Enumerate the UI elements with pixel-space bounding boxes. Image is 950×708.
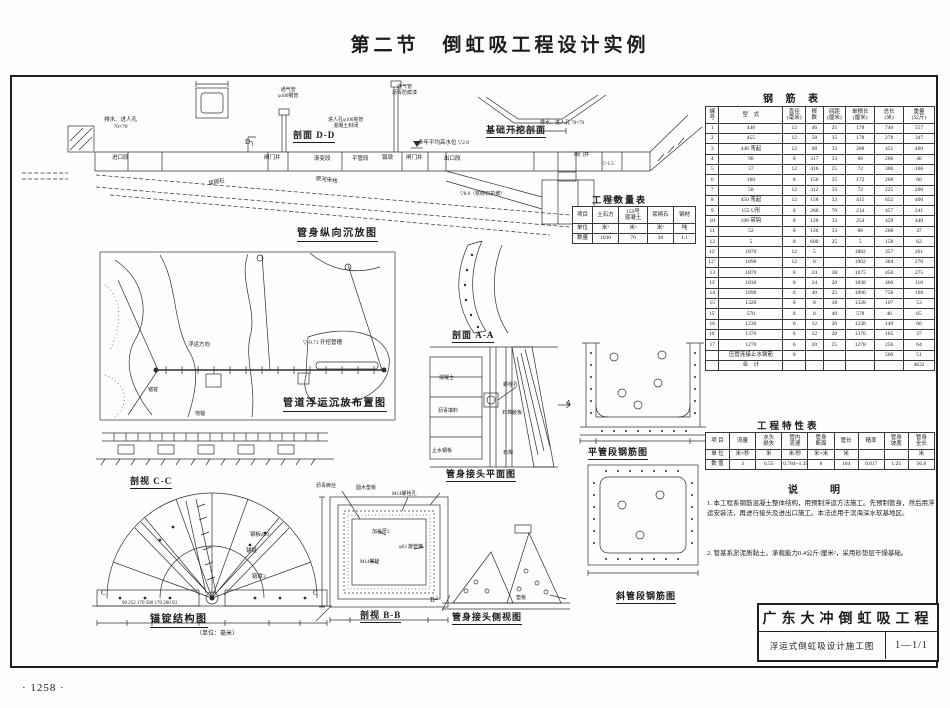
- table-row: 758123123372225200: [706, 185, 935, 195]
- table-cell: 8: [783, 216, 806, 226]
- table-cell: [806, 360, 824, 370]
- table-cell: 33: [823, 216, 846, 226]
- table-cell: 225: [875, 185, 904, 195]
- table-cell: 钢材: [674, 207, 696, 224]
- table-row: 131870824381875450275: [706, 268, 935, 278]
- table-cell: 20: [823, 319, 846, 329]
- table-row: 17127062025127825664: [706, 340, 935, 350]
- table-row: 数量103070301.1: [573, 233, 696, 243]
- table-row: 单 位米³/秒米米/秒米×米米米: [706, 449, 935, 459]
- table-cell: 33: [823, 226, 846, 236]
- section-dd-title: 剖面 D-D: [293, 130, 335, 143]
- table-cell: 1320: [719, 298, 783, 308]
- table-cell: 12: [806, 319, 824, 329]
- table-cell: 46: [904, 154, 935, 164]
- joint-front-drawing: [459, 241, 508, 333]
- table-cell: 8: [783, 298, 806, 308]
- table-cell: 448 弯起: [719, 144, 783, 154]
- table-cell: 33: [823, 195, 846, 205]
- table-cell: 12: [783, 123, 806, 133]
- table-cell: 浆砌石: [648, 207, 674, 224]
- table-cell: 38: [823, 268, 846, 278]
- table-cell: 1890: [719, 257, 783, 267]
- table-cell: 12: [783, 257, 806, 267]
- table-cell: 46: [875, 309, 904, 319]
- vent-pipe1-label: 通气管 φ100钢管: [278, 88, 298, 100]
- wood-pad-label: 圆木垫板: [356, 486, 376, 492]
- table-cell: 52: [719, 226, 783, 236]
- table-cell: 62: [904, 237, 935, 247]
- table-cell: [783, 360, 806, 370]
- table-cell: 数量: [573, 233, 593, 243]
- table-cell: 178: [846, 123, 875, 133]
- table-cell: 88: [846, 226, 875, 236]
- table-cell: 460: [875, 278, 904, 288]
- table-cell: 单 位: [706, 449, 730, 459]
- transition-label: 渐变段: [314, 156, 331, 163]
- table-cell: 57: [719, 164, 783, 174]
- table-cell: 198 带钩: [719, 216, 783, 226]
- table-cell: 米³: [648, 223, 674, 233]
- table-cell: 米: [756, 449, 782, 459]
- table-cell: 单根长 (厘米): [846, 107, 875, 124]
- table-cell: 8: [806, 309, 824, 319]
- drain-manhole-right-label: 排水、进人孔 70×70: [540, 121, 584, 127]
- table-cell: 24: [806, 278, 824, 288]
- table-cell: 1270: [719, 340, 783, 350]
- section-bb-drawing: [316, 491, 448, 623]
- book-page: { "colors": {"ink": "#1c1c1c", "paper": …: [0, 0, 950, 708]
- table-cell: 3: [729, 459, 755, 469]
- table-cell: 16: [706, 319, 719, 329]
- flat-rebar-title: 平管段钢筋图: [588, 447, 648, 460]
- table-cell: 根 数: [806, 107, 824, 124]
- table-cell: 12: [783, 164, 806, 174]
- table-cell: 1838: [846, 278, 875, 288]
- notes-title: 说 明: [788, 481, 844, 496]
- table-cell: 126: [806, 226, 824, 236]
- map-anchor-label: 锚锭: [148, 388, 158, 394]
- table-cell: 14: [706, 288, 719, 298]
- table-cell: 415: [846, 195, 875, 205]
- table-cell: 米: [908, 449, 934, 459]
- table-cell: 25: [823, 237, 846, 247]
- water-stop-label: 止水钢板: [432, 449, 452, 455]
- characteristics-table: 项 目流量水头 损失管内 流速管身 断面管长糙率管身 坡度管身 全长单 位米³/…: [705, 432, 935, 470]
- table-cell: 水头 损失: [756, 433, 782, 450]
- table-cell: 1902: [846, 257, 875, 267]
- table-cell: 1875: [846, 268, 875, 278]
- table-row: 2455125835178278347: [706, 133, 935, 143]
- table-cell: [823, 360, 846, 370]
- gate-well2-label: 闸门井: [406, 155, 423, 162]
- slope-note-label: ▽8.6（浆砌石护坡）: [460, 192, 505, 198]
- table-cell: 570: [719, 309, 783, 319]
- table-cell: 1:25: [884, 459, 908, 469]
- pipe-hoop-label: φ63 旋管箍: [399, 545, 423, 551]
- table-cell: 1890: [719, 288, 783, 298]
- cover-thickness-label: 加盖厚3: [372, 530, 390, 536]
- table-cell: 155 U形: [719, 206, 783, 216]
- table-cell: 128: [806, 216, 824, 226]
- table-cell: 20: [823, 278, 846, 288]
- table-row: 11528126338826847: [706, 226, 935, 236]
- table-cell: 200: [904, 185, 935, 195]
- table-cell: 25: [823, 123, 846, 133]
- table-cell: 20: [823, 329, 846, 339]
- table-cell: 12: [783, 144, 806, 154]
- table-row: 616881562517226860: [706, 175, 935, 185]
- joint-side-title: 管身接头侧视图: [452, 612, 522, 625]
- table-cell: 米³/秒: [729, 449, 755, 459]
- table-cell: 4: [706, 154, 719, 164]
- table-cell: [846, 360, 875, 370]
- table-cell: 448: [719, 123, 783, 133]
- table-cell: 8: [783, 175, 806, 185]
- table-cell: 编 号: [706, 107, 719, 124]
- table-cell: 糙率: [858, 433, 884, 450]
- table-cell: 37: [904, 329, 935, 339]
- table-cell: 8: [783, 309, 806, 319]
- table-cell: 98: [719, 154, 783, 164]
- manhole-mid-label: 进人孔φ100夹管 混凝土封闭: [328, 118, 363, 130]
- table-cell: 400: [904, 144, 935, 154]
- table-cell: [823, 350, 846, 360]
- table-cell: 12″: [706, 257, 719, 267]
- quantity-table-title: 工程数量表: [592, 193, 647, 206]
- table-cell: 管长: [834, 433, 858, 450]
- section-bb-title: 剖视 B-B: [360, 610, 401, 623]
- table-cell: 16′: [706, 329, 719, 339]
- table-cell: 107: [875, 298, 904, 308]
- map-direction-label: 浮运方向: [188, 342, 210, 349]
- table-cell: [875, 360, 904, 370]
- table-cell: 206: [875, 154, 904, 164]
- pad-plate-label: 垫板: [516, 596, 526, 602]
- table-cell: 8: [808, 459, 834, 469]
- table-cell: 652: [875, 195, 904, 205]
- table-cell: 172: [846, 175, 875, 185]
- table-cell: 1328: [846, 298, 875, 308]
- excavation-section-title: 基础开挖剖面: [486, 125, 546, 138]
- table-cell: [846, 350, 875, 360]
- table-cell: 13: [706, 268, 719, 278]
- table-row: 编 号型 式直径 (毫米)根 数间距 (厘米)单根长 (厘米)总长 (米)重量 …: [706, 107, 935, 124]
- table-cell: 1882: [846, 247, 875, 257]
- asphalt-fiber-label: 沥青麻丝: [316, 484, 336, 490]
- table-cell: 33: [823, 154, 846, 164]
- table-cell: 104: [834, 459, 858, 469]
- table-cell: 1870: [719, 247, 783, 257]
- table-cell: 66: [904, 319, 935, 329]
- table-cell: 70: [823, 206, 846, 216]
- table-row: 合 计4632: [706, 360, 935, 370]
- table-row: 9155 U形826070214457241: [706, 206, 935, 216]
- table-cell: 8: [806, 298, 824, 308]
- table-cell: 70: [619, 233, 648, 243]
- project-name: 广东大冲倒虹吸工程: [759, 605, 937, 632]
- table-cell: [858, 449, 884, 459]
- table-cell: 150号 混凝土: [619, 207, 648, 224]
- table-cell: 214: [846, 206, 875, 216]
- table-cell: 278: [875, 133, 904, 143]
- table-cell: 管身 全长: [908, 433, 934, 450]
- table-cell: 30: [648, 233, 674, 243]
- b-cut-mark: B┘: [430, 596, 440, 604]
- table-cell: 8: [783, 154, 806, 164]
- rebar-table: 编 号型 式直径 (毫米)根 数间距 (厘米)单根长 (厘米)总长 (米)重量 …: [705, 106, 935, 371]
- table-cell: 118: [904, 278, 935, 288]
- table-cell: 261: [904, 247, 935, 257]
- inlet-label: 进口段: [112, 155, 129, 162]
- table-cell: 758: [875, 288, 904, 298]
- table-cell: 455: [719, 133, 783, 143]
- table-cell: 256: [875, 340, 904, 350]
- table-cell: 33: [823, 185, 846, 195]
- table-cell: 25: [823, 175, 846, 185]
- table-cell: 459: [875, 216, 904, 226]
- table-cell: 0.784~1.35: [782, 459, 808, 469]
- table-cell: 0.017: [858, 459, 884, 469]
- table-cell: 260: [806, 206, 824, 216]
- table-cell: 268: [875, 226, 904, 236]
- table-cell: 1278: [846, 340, 875, 350]
- table-cell: 578: [846, 309, 875, 319]
- page-number: · 1258 ·: [22, 682, 65, 694]
- table-cell: 149: [875, 319, 904, 329]
- asphalt-seal-label: 沥青填料: [438, 409, 458, 415]
- table-cell: 15′: [706, 309, 719, 319]
- table-cell: 单位: [573, 223, 593, 233]
- table-cell: 流量: [729, 433, 755, 450]
- table-cell: 5: [706, 164, 719, 174]
- table-cell: 管内 流速: [782, 433, 808, 450]
- joint-plan-title: 管身接头平面图: [446, 469, 516, 482]
- table-cell: 1: [706, 123, 719, 133]
- table-cell: 管身 坡度: [884, 433, 908, 450]
- table-cell: 13′: [706, 278, 719, 288]
- table-cell: 2: [706, 133, 719, 143]
- table-cell: 68: [806, 144, 824, 154]
- table-cell: 64: [904, 340, 935, 350]
- table-cell: 1830: [719, 278, 783, 288]
- vent-pipe2-label: 通气管 沥青防腐漆: [392, 85, 417, 97]
- table-cell: 178: [846, 133, 875, 143]
- table-cell: 6: [806, 257, 824, 267]
- table-row: 557124162572300166: [706, 164, 935, 174]
- float-strip-drawing: [96, 433, 334, 465]
- table-cell: 46: [806, 123, 824, 133]
- anchor-unit-note: （单位：毫米）: [196, 631, 238, 638]
- table-cell: 304: [875, 257, 904, 267]
- table-cell: 土石方: [593, 207, 619, 224]
- table-cell: 8: [783, 350, 806, 360]
- table-cell: [823, 257, 846, 267]
- table-row: 单位米³米³米³吨: [573, 223, 696, 233]
- table-cell: 18: [823, 298, 846, 308]
- table-cell: 7: [706, 185, 719, 195]
- table-cell: 357: [875, 247, 904, 257]
- note-item-2: 2. 管基系淤泥质黏土，承载能力0.4公斤/厘米²，采用砂垫层干燥基础。: [707, 549, 935, 559]
- table-cell: 440: [904, 216, 935, 226]
- table-cell: 6: [783, 288, 806, 298]
- table-cell: 58: [719, 185, 783, 195]
- map-winch-label: 地锚: [195, 412, 205, 418]
- table-cell: [706, 350, 719, 360]
- drawing-name: 浮运式倒虹吸设计施工图: [759, 632, 886, 659]
- table-row: 数 值30.550.784~1.3581040.0171:2556.8: [706, 459, 935, 469]
- table-cell: 40: [823, 309, 846, 319]
- bolt-hole-bb-label: M14螺栓孔: [392, 492, 416, 498]
- table-cell: 12: [783, 195, 806, 205]
- table-cell: 项目: [573, 207, 593, 224]
- a-cut-mark: A: [566, 399, 571, 407]
- table-cell: 268: [875, 175, 904, 185]
- table-cell: 数 值: [706, 459, 730, 469]
- table-cell: 5: [846, 237, 875, 247]
- anchor-block-label: 镇墩: [382, 155, 393, 162]
- table-row: 项目土石方150号 混凝土浆砌石钢材: [573, 207, 696, 224]
- table-cell: 1870: [719, 268, 783, 278]
- table-row: 10198 带钩812833254459440: [706, 216, 935, 226]
- table-cell: [884, 449, 908, 459]
- incline-rebar-drawing: [588, 465, 698, 576]
- table-cell: 158: [806, 195, 824, 205]
- table-cell: 8: [783, 268, 806, 278]
- table-cell: 53: [904, 298, 935, 308]
- table-cell: 8: [783, 206, 806, 216]
- table-cell: 8: [706, 195, 719, 205]
- table-cell: 416: [806, 164, 824, 174]
- table-cell: 压管连接止水钢筋: [719, 350, 783, 360]
- table-row: 4988317336620646: [706, 154, 935, 164]
- map-channel-label: ▽-0.71 开挖管槽: [303, 340, 342, 347]
- table-cell: 米³: [619, 223, 648, 233]
- outlet-level-label: ▽-1.5: [602, 162, 614, 168]
- pipe-body-label: 平管段: [352, 156, 369, 163]
- table-cell: 457: [875, 206, 904, 216]
- page-title: 第二节 倒虹吸工程设计实例: [270, 30, 730, 57]
- table-cell: 35: [823, 133, 846, 143]
- table-row: 13′1830824201838460118: [706, 278, 935, 288]
- table-cell: 9: [706, 206, 719, 216]
- table-cell: 11: [706, 226, 719, 236]
- table-cell: 72: [846, 164, 875, 174]
- bolt-hole-label: 螺栓孔: [503, 383, 518, 389]
- table-cell: 总长 (米): [875, 107, 904, 124]
- cc-right-mark: C: [313, 589, 318, 597]
- water-level-label: 多年平均高水位 ▽2.8: [418, 140, 469, 147]
- table-cell: 1.1: [674, 233, 696, 243]
- table-cell: 158: [875, 237, 904, 247]
- table-cell: 米³: [593, 223, 619, 233]
- table-cell: 3: [706, 144, 719, 154]
- anchor-structure-title: 锚锭结构图: [150, 614, 208, 628]
- table-cell: 72: [846, 185, 875, 195]
- table-cell: 4632: [904, 360, 935, 370]
- table-cell: 317: [806, 154, 824, 164]
- table-cell: 58: [806, 133, 824, 143]
- table-cell: 400: [904, 195, 935, 205]
- table-cell: 40: [806, 288, 824, 298]
- characteristics-table-title: 工程特性表: [757, 418, 820, 432]
- table-cell: 6: [783, 329, 806, 339]
- table-cell: 450: [875, 268, 904, 278]
- table-cell: 740: [875, 123, 904, 133]
- bolt-m14-label: M14螺栓: [360, 560, 379, 566]
- cc-dimensions: 90 252 170 580 170 200 93: [122, 601, 177, 607]
- table-cell: 8: [783, 226, 806, 236]
- table-cell: 项 目: [706, 433, 730, 450]
- table-cell: 500: [875, 350, 904, 360]
- rebar-table-title: 钢 筋 表: [763, 90, 823, 105]
- table-cell: 直径 (毫米): [783, 107, 806, 124]
- table-cell: 24: [806, 268, 824, 278]
- table-cell: 241: [904, 206, 935, 216]
- table-cell: 吨: [674, 223, 696, 233]
- table-row: 8450 弯起1215833415652400: [706, 195, 935, 205]
- table-cell: 米×米: [808, 449, 834, 459]
- map-title: 管道浮运沉放布置图: [283, 398, 387, 412]
- table-cell: 12: [706, 237, 719, 247]
- flat-rebar-drawing: [580, 343, 706, 444]
- table-cell: 450 弯起: [719, 195, 783, 205]
- title-block: 广东大冲倒虹吸工程 浮运式倒虹吸设计施工图 1—1/1: [757, 603, 939, 662]
- section-aa-title: 剖面 A-A: [452, 330, 494, 343]
- asbestos-label: 石棉: [503, 451, 513, 457]
- table-cell: 0.55: [756, 459, 782, 469]
- section-cc-title: 剖视 C-C: [130, 476, 172, 489]
- table-cell: 1376: [846, 329, 875, 339]
- table-cell: 168: [719, 175, 783, 185]
- table-cell: 12: [806, 329, 824, 339]
- anchor-chain-label: 锚链: [246, 548, 257, 555]
- table-cell: 1896: [846, 288, 875, 298]
- table-cell: 6: [783, 319, 806, 329]
- table-cell: 600: [806, 237, 824, 247]
- table-cell: 合 计: [719, 360, 783, 370]
- table-row: 压管连接止水钢筋850051: [706, 350, 935, 360]
- note-item-1: 1. 本工程系钢筋混凝土整体结构，用预制浮运方法施工。先预制管身，然后用浮运安装…: [707, 499, 935, 520]
- table-cell: [823, 247, 846, 257]
- table-row: 1448124625178740557: [706, 123, 935, 133]
- table-cell: 165: [875, 329, 904, 339]
- profile-title: 管身纵向沉放图: [297, 228, 378, 242]
- table-cell: 275: [904, 268, 935, 278]
- table-cell: 12: [783, 185, 806, 195]
- table-cell: 254: [846, 216, 875, 226]
- table-cell: 288: [846, 144, 875, 154]
- chain-thickness-label: 链厚3: [252, 574, 266, 581]
- table-cell: 25: [823, 340, 846, 350]
- table-cell: 型 式: [719, 107, 783, 124]
- section-d-cut-mark: D┐: [245, 138, 255, 146]
- table-cell: 270: [904, 257, 935, 267]
- table-cell: 5: [806, 247, 824, 257]
- table-cell: 1230: [719, 319, 783, 329]
- joint-side-drawing: [442, 525, 570, 611]
- incline-rebar-title: 斜管段钢筋图: [616, 591, 676, 604]
- table-row: 16123061220123814966: [706, 319, 935, 329]
- table-cell: 25: [823, 164, 846, 174]
- table-cell: 168: [904, 288, 935, 298]
- outlet-label: 出口段: [444, 156, 461, 163]
- table-cell: 米/秒: [782, 449, 808, 459]
- table-row: 125860025515862: [706, 237, 935, 247]
- table-cell: [806, 350, 824, 360]
- table-cell: 166: [904, 164, 935, 174]
- gate-well-label: 闸门井: [264, 155, 281, 162]
